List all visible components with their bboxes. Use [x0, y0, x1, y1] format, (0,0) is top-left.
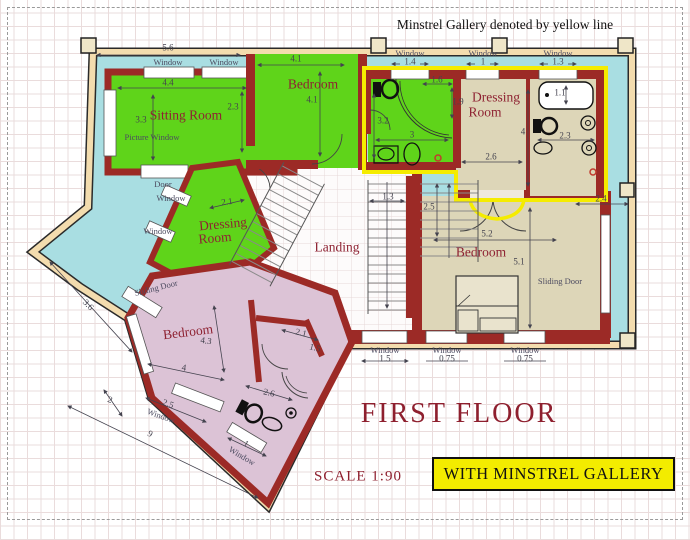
dimension-label: 4.3 — [200, 336, 212, 346]
fixture-tag: Window — [210, 58, 239, 67]
dimension-label: 4 — [181, 363, 187, 373]
dimension-label: 2.5 — [423, 203, 434, 212]
landing-label: Landing — [315, 240, 360, 254]
dimension-label: 2.1 — [294, 327, 307, 338]
fixture-tag: Door — [154, 180, 171, 189]
dimension-label: 1 — [242, 439, 250, 449]
banner-text: WITH MINSTREL GALLERY — [444, 464, 664, 484]
fixture-tag: Window — [154, 58, 183, 67]
dimension-label: 2.6 — [262, 387, 275, 398]
dimension-label: 5.1 — [513, 258, 524, 267]
dimension-label: 1.1 — [554, 89, 565, 98]
dimension-label: 2.1 — [221, 197, 233, 207]
fixture-tag: Sliding Door — [134, 279, 179, 298]
fixture-tag: Window — [144, 227, 173, 236]
bedroom-top-label: Bedroom — [288, 77, 338, 91]
dimension-label: 2.3 — [227, 103, 238, 112]
dimension-label: 5.2 — [481, 230, 492, 239]
bedroom-right-label: Bedroom — [456, 245, 506, 259]
dimension-label: 2.4 — [595, 195, 606, 204]
dimension-label: 2.5 — [161, 398, 175, 410]
dimension-label: 1.9 — [452, 98, 463, 107]
dimension-label: 1.3 — [552, 58, 563, 67]
dimension-label: 1.5 — [308, 342, 321, 353]
floor-plan-page: Sitting RoomBedroomDressingRoomDressingR… — [0, 0, 690, 540]
dimension-label: 3.6 — [81, 298, 95, 312]
minstrel-gallery-banner: WITH MINSTREL GALLERY — [432, 457, 675, 491]
minstrel-note: Minstrel Gallery denoted by yellow line — [397, 17, 613, 33]
fixture-tag: Picture Window — [125, 133, 180, 142]
dimension-label: 2 — [106, 395, 113, 405]
dressing-room-mid-label-line2: Room — [198, 230, 232, 246]
fixture-tag: Window — [157, 194, 186, 203]
dimension-label: 2.3 — [559, 132, 570, 141]
dimension-label: 1.4 — [404, 58, 415, 67]
dimension-label: 3 — [410, 131, 415, 140]
dimension-label: 1.6 — [431, 76, 442, 85]
dimension-label: 0.75 — [517, 355, 533, 364]
dimension-label: 4.1 — [290, 55, 301, 64]
fixture-tag: Sliding Door — [538, 277, 582, 286]
dimension-label: 3.2 — [377, 117, 388, 126]
fixture-tag: Window — [227, 445, 256, 467]
dimension-label: 1.5 — [379, 355, 390, 364]
dimension-label: 9 — [146, 429, 154, 439]
dimension-label: 2.6 — [485, 153, 496, 162]
dimension-label: 1.3 — [382, 193, 393, 202]
dimension-label: 5.6 — [162, 44, 173, 53]
dimension-label: 4.4 — [162, 79, 173, 88]
dimension-label: 1 — [481, 58, 486, 67]
page-title: FIRST FLOOR — [361, 398, 558, 430]
dimension-label: 3.3 — [135, 116, 146, 125]
scale-text: SCALE 1:90 — [314, 469, 402, 486]
dimension-label: 4.1 — [306, 96, 317, 105]
dimension-label: 4 — [521, 128, 526, 137]
sitting-room-label: Sitting Room — [150, 108, 222, 122]
dressing-room-tr-label-line2: Room — [468, 105, 501, 119]
dimension-label: 0.75 — [439, 355, 455, 364]
dressing-room-tr-label-line1: Dressing — [472, 90, 520, 104]
